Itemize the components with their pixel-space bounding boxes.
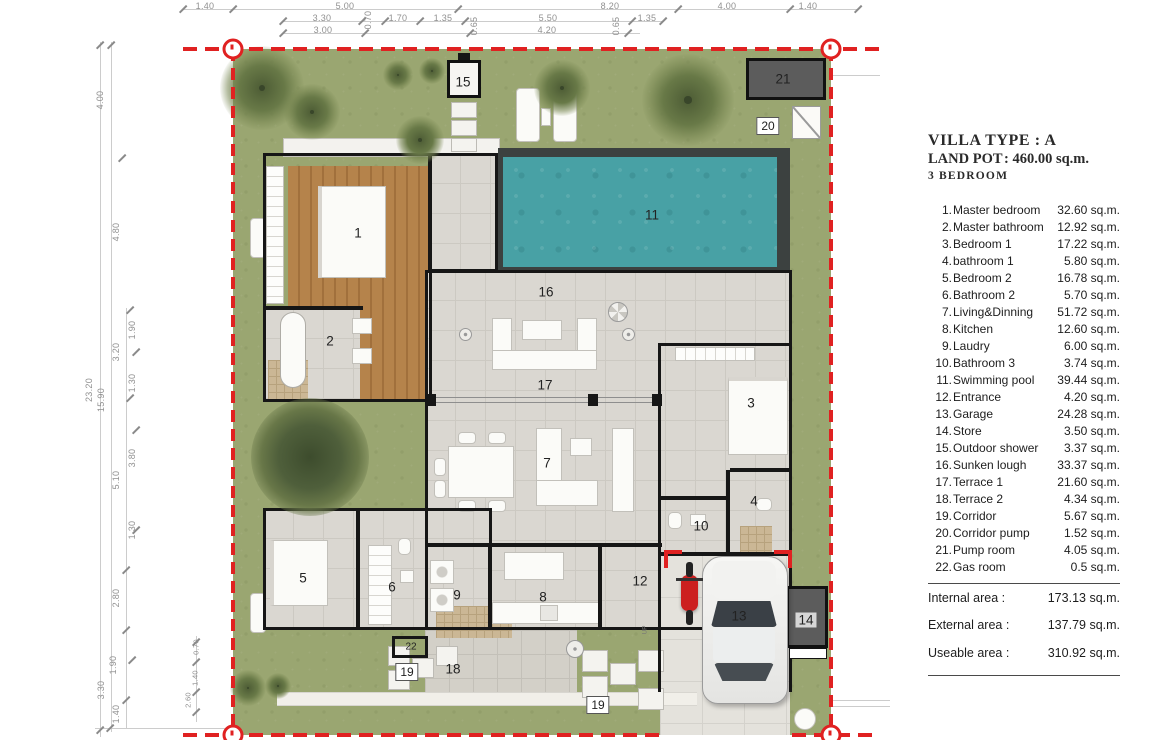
- room-label-3: 3: [747, 396, 755, 411]
- room-label-22: 22: [405, 642, 416, 653]
- room-area: 1.52 sq.m.: [1064, 526, 1120, 540]
- room-name: Terrace 2: [953, 492, 1003, 506]
- room-label-16: 16: [538, 285, 553, 300]
- land-plot-value: : 460.00 sq.m.: [1004, 151, 1089, 168]
- room-label-2: 2: [326, 334, 334, 349]
- total-label: Internal area :: [928, 591, 1005, 605]
- motorbike-handlebar: [676, 578, 703, 581]
- room-number: 20.: [928, 526, 952, 540]
- room-area: 4.05 sq.m.: [1064, 543, 1120, 557]
- room-name: Bedroom 1: [953, 237, 1012, 251]
- room-number: 18.: [928, 492, 952, 506]
- garden-path: [277, 692, 697, 706]
- room-number: 19.: [928, 509, 952, 523]
- dimension-label: 3.30: [313, 13, 332, 23]
- title-block: VILLA TYPE : A LAND POT : 460.00 sq.m. 3…: [928, 132, 1120, 201]
- property-boundary-bottom: [183, 733, 659, 737]
- total-row: Useable area :310.92 sq.m.: [928, 639, 1120, 667]
- motorbike-front-wheel: [686, 562, 693, 577]
- room-name: Corridor: [953, 509, 996, 523]
- boundary-marker: [821, 39, 842, 60]
- wall-laundry-kitchen: [488, 545, 492, 630]
- dimension-label: 3.00: [314, 25, 333, 35]
- room-label-17: 17: [537, 378, 552, 393]
- total-value: 137.79 sq.m.: [1048, 618, 1120, 632]
- total-row: Internal area :173.13 sq.m.: [928, 584, 1120, 612]
- gate-box: [792, 106, 821, 139]
- room-name: Bedroom 2: [953, 271, 1012, 285]
- legend-row: 15.Outdoor shower3.37 sq.m.: [928, 439, 1120, 456]
- left-wing-walls: [263, 508, 492, 630]
- dimension-label: 0.65: [611, 17, 621, 36]
- room-area: 16.78 sq.m.: [1057, 271, 1120, 285]
- room-area: 5.67 sq.m.: [1064, 509, 1120, 523]
- dimension-label: 1.40: [191, 670, 200, 686]
- stepping-stone: [451, 120, 477, 136]
- boundary-marker: [223, 39, 244, 60]
- room-number: 8.: [928, 322, 952, 336]
- room-label-15: 15: [455, 75, 470, 90]
- room-area: 51.72 sq.m.: [1057, 305, 1120, 319]
- room-label-8: 8: [539, 590, 547, 605]
- well-cover: [794, 708, 816, 730]
- shrub: [265, 673, 291, 699]
- shrub: [230, 670, 266, 706]
- wall-bed1-bath1: [730, 468, 792, 472]
- room-number: 22.: [928, 560, 952, 574]
- column-base: [588, 394, 598, 406]
- room-number: 16.: [928, 458, 952, 472]
- dimension-label: 1.30: [127, 374, 137, 393]
- dimension-label: 3.80: [127, 449, 137, 468]
- palm-tree: [642, 54, 734, 146]
- room-label-20: 20: [756, 117, 779, 135]
- room-area: 24.28 sq.m.: [1057, 407, 1120, 421]
- bedroom1-walls: [658, 343, 792, 555]
- room-name: Master bedroom: [953, 203, 1040, 217]
- room-number: 15.: [928, 441, 952, 455]
- dimension-label: 5.50: [539, 13, 558, 23]
- dimension-label: 1.70: [389, 13, 408, 23]
- legend-row: 1.Master bedroom32.60 sq.m.: [928, 201, 1120, 218]
- room-number: 17.: [928, 475, 952, 489]
- car-roof: [713, 628, 775, 662]
- legend-row: 8.Kitchen12.60 sq.m.: [928, 320, 1120, 337]
- dimension-label: 5.10: [111, 471, 121, 490]
- room-label-21: 21: [775, 72, 790, 87]
- legend-row: 12.Entrance4.20 sq.m.: [928, 388, 1120, 405]
- legend-row: 7.Living&Dinning51.72 sq.m.: [928, 303, 1120, 320]
- room-name: Laudry: [953, 339, 990, 353]
- dimension-line: [832, 75, 880, 76]
- dimension-tick: [126, 394, 134, 402]
- room-area: 3.37 sq.m.: [1064, 441, 1120, 455]
- palm-tree: [534, 60, 590, 116]
- room-label-1: 1: [354, 226, 362, 241]
- room-name: Store: [953, 424, 982, 438]
- legend-row: 18.Terrace 24.34 sq.m.: [928, 490, 1120, 507]
- parking-corner-mark: [774, 550, 792, 568]
- store-label-bar: [789, 648, 827, 659]
- shrub: [419, 58, 445, 84]
- room-number: 7.: [928, 305, 952, 319]
- legend-row: 13.Garage24.28 sq.m.: [928, 405, 1120, 422]
- total-value: 310.92 sq.m.: [1048, 646, 1120, 660]
- room-number: 11.: [928, 373, 952, 387]
- dimension-label: 4.20: [538, 25, 557, 35]
- stepping-stone: [610, 663, 636, 685]
- wall-kitchen-entrance: [598, 545, 602, 630]
- room-name: Bathroom 2: [953, 288, 1015, 302]
- room-legend: 1.Master bedroom32.60 sq.m.2.Master bath…: [928, 201, 1120, 575]
- dimension-tick: [854, 5, 862, 13]
- dimension-label: 1.35: [638, 13, 657, 23]
- palm-tree: [284, 84, 340, 140]
- legend-row: 9.Laudry6.00 sq.m.: [928, 337, 1120, 354]
- villa-type-title: VILLA TYPE : A: [928, 132, 1120, 150]
- dimension-tick: [132, 426, 140, 434]
- legend-row: 17.Terrace 121.60 sq.m.: [928, 473, 1120, 490]
- room-number: 10.: [928, 356, 952, 370]
- room-label-19: 19: [586, 696, 609, 714]
- room-label-5: 5: [299, 571, 307, 586]
- parking-corner-mark: [664, 550, 682, 568]
- shower-box-tab: [458, 53, 470, 60]
- property-boundary-right: [829, 49, 833, 735]
- room-name: Bathroom 3: [953, 356, 1015, 370]
- legend-row: 16.Sunken lough33.37 sq.m.: [928, 456, 1120, 473]
- legend-row: 4.bathroom 15.80 sq.m.: [928, 252, 1120, 269]
- car-hood: [712, 561, 776, 599]
- legend-row: 22.Gas room0.5 sq.m.: [928, 558, 1120, 575]
- room-name: Outdoor shower: [953, 441, 1038, 455]
- room-name: Entrance: [953, 390, 1001, 404]
- dimension-label: 1.40: [799, 1, 818, 11]
- stepping-stone: [451, 138, 477, 152]
- boundary-marker: [821, 725, 842, 740]
- room-number: 5.: [928, 271, 952, 285]
- total-row: External area :137.79 sq.m.: [928, 612, 1120, 640]
- legend-row: 10.Bathroom 33.74 sq.m.: [928, 354, 1120, 371]
- room-area: 32.60 sq.m.: [1057, 203, 1120, 217]
- room-area: 17.22 sq.m.: [1057, 237, 1120, 251]
- legend-row: 2.Master bathroom12.92 sq.m.: [928, 218, 1120, 235]
- room-name: Pump room: [953, 543, 1015, 557]
- room-name: Kitchen: [953, 322, 993, 336]
- total-label: Useable area :: [928, 646, 1009, 660]
- total-label: External area :: [928, 618, 1009, 632]
- garden-tree: [251, 398, 369, 516]
- dimension-tick: [118, 154, 126, 162]
- room-number: 2.: [928, 220, 952, 234]
- wall-bed1-bath2: [263, 306, 363, 310]
- dimension-label: 2.80: [111, 589, 121, 608]
- legend-row: 14.Store3.50 sq.m.: [928, 422, 1120, 439]
- room-number: 14.: [928, 424, 952, 438]
- dimension-line: [283, 33, 640, 34]
- total-value: 173.13 sq.m.: [1048, 591, 1120, 605]
- column-base: [426, 394, 436, 406]
- wall-bath1-left: [726, 470, 730, 555]
- room-label-7: 7: [543, 456, 551, 471]
- legend-row: 21.Pump room4.05 sq.m.: [928, 541, 1120, 558]
- room-name: Swimming pool: [953, 373, 1034, 387]
- room-number: 12.: [928, 390, 952, 404]
- manhole: [566, 640, 584, 658]
- property-boundary-top: [183, 47, 880, 51]
- room-label-18: 18: [445, 662, 460, 677]
- room-area: 4.20 sq.m.: [1064, 390, 1120, 404]
- dimension-label: 23.20: [84, 378, 94, 402]
- room-name: Garage: [953, 407, 993, 421]
- room-area: 12.60 sq.m.: [1057, 322, 1120, 336]
- room-label-19: 19: [395, 663, 418, 681]
- wall-living-kitchen: [425, 543, 662, 547]
- stepping-stone: [582, 650, 608, 672]
- dimension-tick: [132, 348, 140, 356]
- pool-water: [503, 157, 777, 267]
- dimension-label: 4.80: [111, 223, 121, 242]
- dimension-label: 4.00: [718, 1, 737, 11]
- room-area: 3.50 sq.m.: [1064, 424, 1120, 438]
- dimension-label: 1.90: [108, 656, 118, 675]
- room-area: 5.80 sq.m.: [1064, 254, 1120, 268]
- property-boundary-left: [231, 49, 235, 735]
- palm-tree: [396, 116, 444, 164]
- room-area: 5.70 sq.m.: [1064, 288, 1120, 302]
- room-label-11: 11: [645, 208, 659, 223]
- room-area: 12.92 sq.m.: [1057, 220, 1120, 234]
- dimension-label: 3.20: [111, 343, 121, 362]
- boundary-marker: [223, 725, 244, 740]
- sliding-door-line: [428, 397, 662, 403]
- room-label-13: 13: [731, 609, 746, 624]
- room-name: Sunken lough: [953, 458, 1026, 472]
- room-number: 9.: [928, 339, 952, 353]
- bedroom-count: 3 BEDROOM: [928, 170, 1120, 182]
- dimension-label: 0.70: [363, 11, 373, 30]
- motorbike-rear-wheel: [686, 610, 693, 625]
- legend-row: 6.Bathroom 25.70 sq.m.: [928, 286, 1120, 303]
- room-number: 6.: [928, 288, 952, 302]
- room-area: 4.34 sq.m.: [1064, 492, 1120, 506]
- dimension-line: [183, 9, 858, 10]
- room-area: 39.44 sq.m.: [1057, 373, 1120, 387]
- room-name: Living&Dinning: [953, 305, 1033, 319]
- dimension-label: 15.90: [96, 388, 106, 412]
- dimension-tick: [128, 656, 136, 664]
- room-area: 21.60 sq.m.: [1057, 475, 1120, 489]
- column-base: [652, 394, 662, 406]
- master-suite-walls: [263, 153, 432, 402]
- spec-panel: VILLA TYPE : A LAND POT : 460.00 sq.m. 3…: [928, 132, 1120, 676]
- dimension-line: [111, 42, 112, 732]
- area-totals: Internal area :173.13 sq.m.External area…: [928, 584, 1120, 667]
- room-area: 0.5 sq.m.: [1071, 560, 1120, 574]
- dimension-tick: [659, 17, 667, 25]
- dimension-label: 1.90: [127, 321, 137, 340]
- room-label-6: 6: [388, 580, 396, 595]
- legend-row: 5.Bedroom 216.78 sq.m.: [928, 269, 1120, 286]
- legend-row: 20.Corridor pump1.52 sq.m.: [928, 524, 1120, 541]
- room-area: 6.00 sq.m.: [1064, 339, 1120, 353]
- dimension-tick: [126, 306, 134, 314]
- dimension-line: [95, 728, 233, 729]
- room-label-12: 12: [632, 574, 647, 589]
- wall-bath3-top: [658, 496, 730, 500]
- room-name: Master bathroom: [953, 220, 1044, 234]
- room-name: Gas room: [953, 560, 1006, 574]
- stepping-stone: [582, 676, 608, 698]
- dimension-label: 1.40: [111, 705, 121, 724]
- dimension-line: [126, 308, 127, 728]
- room-name: Corridor pump: [953, 526, 1030, 540]
- room-name: bathroom 1: [953, 254, 1014, 268]
- room-name: Terrace 1: [953, 475, 1003, 489]
- land-plot-label: LAND POT: [928, 151, 1004, 168]
- room-label-up: UP: [642, 625, 649, 634]
- wall-bed2-bath2: [356, 508, 360, 630]
- dimension-line: [833, 706, 890, 707]
- room-number: 3.: [928, 237, 952, 251]
- stepping-stone: [451, 102, 477, 118]
- floor-plan-sheet: 1234567891011121314151617181919202122UP …: [0, 0, 1170, 740]
- dimension-label: 1.35: [434, 13, 453, 23]
- shrub: [383, 60, 413, 90]
- car-rear-window: [714, 663, 774, 681]
- room-area: 3.74 sq.m.: [1064, 356, 1120, 370]
- legend-row: 11.Swimming pool39.44 sq.m.: [928, 371, 1120, 388]
- entry-hall-walls: [428, 153, 498, 272]
- room-area: 33.37 sq.m.: [1057, 458, 1120, 472]
- dimension-label: 1.40: [196, 1, 215, 11]
- room-number: 4.: [928, 254, 952, 268]
- room-label-10: 10: [693, 519, 708, 534]
- dimension-label: 8.20: [601, 1, 620, 11]
- room-number: 21.: [928, 543, 952, 557]
- dimension-label: 5.00: [336, 1, 355, 11]
- legend-row: 3.Bedroom 117.22 sq.m.: [928, 235, 1120, 252]
- legend-divider: [928, 675, 1120, 676]
- dimension-label: 3.30: [96, 681, 106, 700]
- room-label-14: 14: [795, 613, 816, 628]
- legend-row: 19.Corridor5.67 sq.m.: [928, 507, 1120, 524]
- room-label-9: 9: [453, 588, 461, 603]
- room-number: 1.: [928, 203, 952, 217]
- dimension-label: 4.00: [95, 91, 105, 110]
- room-number: 13.: [928, 407, 952, 421]
- room-label-4: 4: [750, 494, 758, 509]
- dimension-line: [833, 700, 890, 701]
